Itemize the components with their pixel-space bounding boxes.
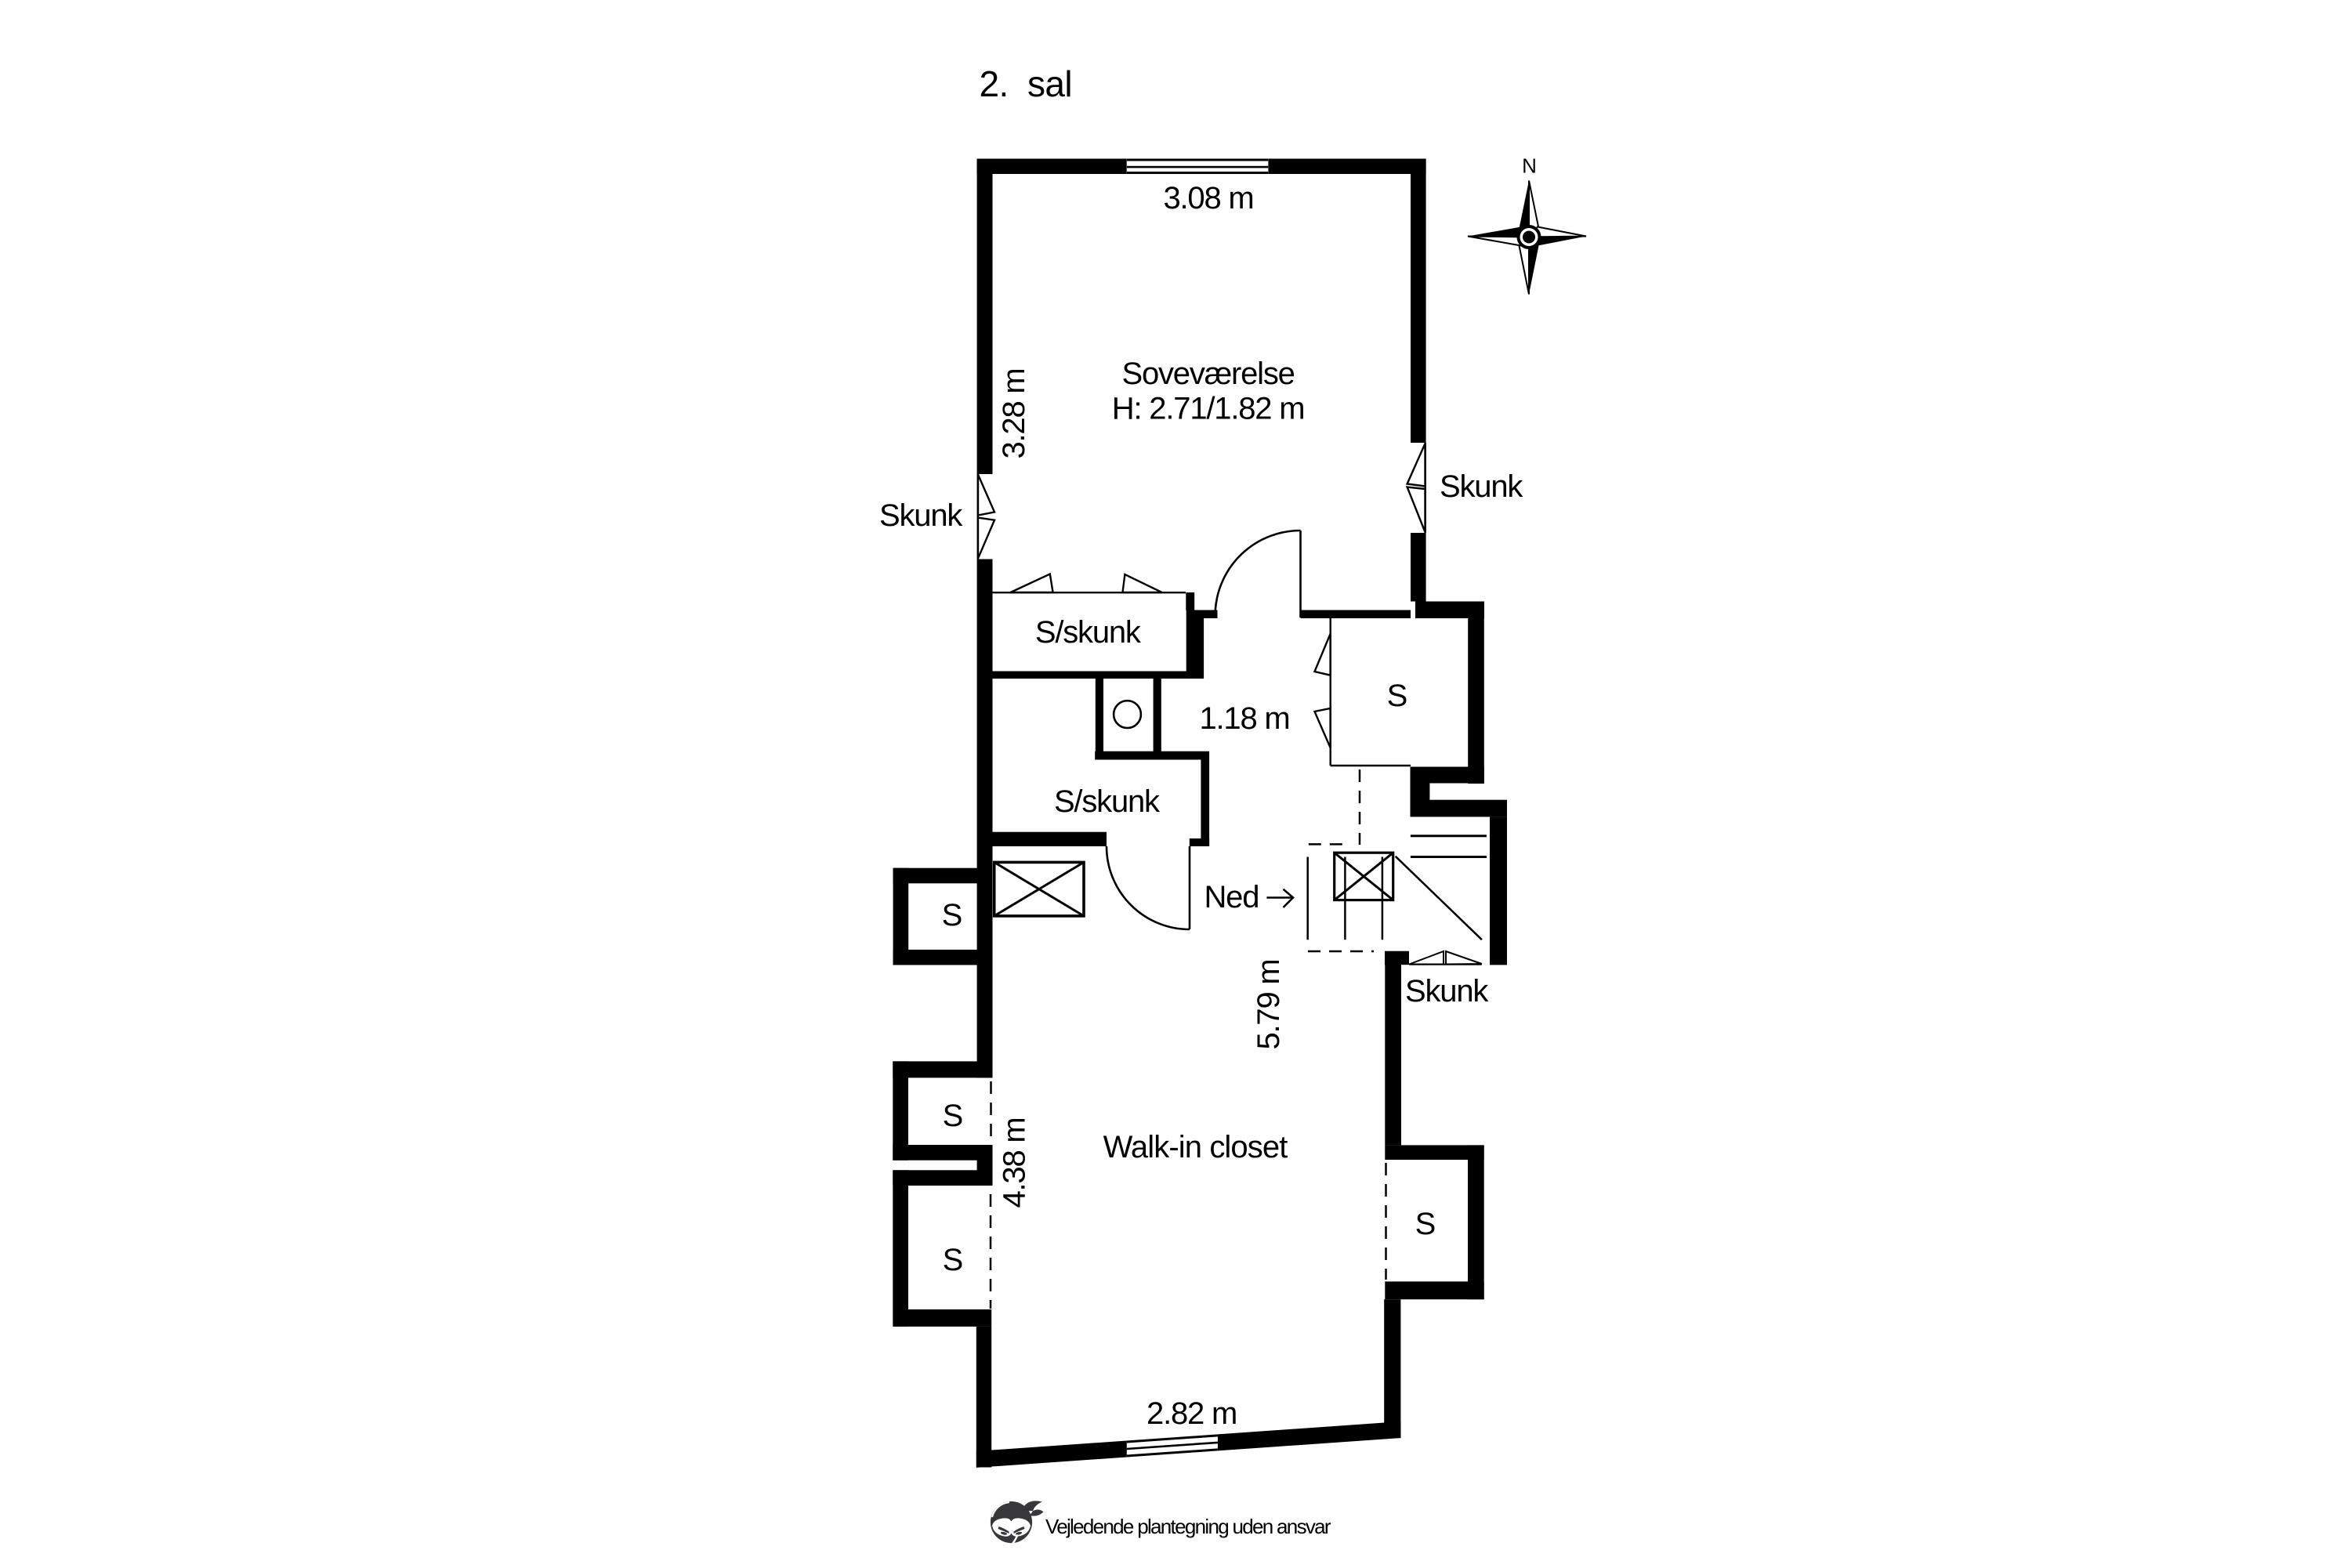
svg-text:1.18 m: 1.18 m bbox=[1199, 701, 1289, 736]
svg-text:Skunk: Skunk bbox=[879, 498, 963, 533]
svg-text:S: S bbox=[942, 898, 963, 932]
svg-text:Ned: Ned bbox=[1204, 880, 1259, 914]
svg-text:S: S bbox=[1387, 679, 1408, 713]
svg-text:Skunk: Skunk bbox=[1405, 974, 1489, 1009]
svg-text:2.82 m: 2.82 m bbox=[1147, 1396, 1237, 1431]
svg-text:H: 2.71/1.82 m: H: 2.71/1.82 m bbox=[1112, 392, 1305, 426]
svg-text:S: S bbox=[1415, 1207, 1436, 1241]
svg-text:2. sal: 2. sal bbox=[980, 63, 1073, 104]
svg-text:3.08 m: 3.08 m bbox=[1163, 181, 1253, 215]
svg-text:5.79 m: 5.79 m bbox=[1252, 959, 1286, 1049]
svg-text:Skunk: Skunk bbox=[1440, 469, 1523, 504]
svg-text:4.38 m: 4.38 m bbox=[998, 1117, 1032, 1208]
svg-text:S/skunk: S/skunk bbox=[1054, 784, 1161, 819]
svg-text:3.28 m: 3.28 m bbox=[997, 368, 1031, 458]
svg-text:Vejledende plantegning uden an: Vejledende plantegning uden ansvar bbox=[1045, 1515, 1331, 1538]
svg-text:Walk-in closet: Walk-in closet bbox=[1103, 1130, 1288, 1164]
svg-text:N: N bbox=[1522, 154, 1537, 178]
svg-text:S: S bbox=[943, 1243, 964, 1277]
svg-text:S: S bbox=[943, 1099, 964, 1133]
svg-text:S/skunk: S/skunk bbox=[1035, 615, 1142, 650]
svg-text:Soveværelse: Soveværelse bbox=[1121, 357, 1294, 391]
